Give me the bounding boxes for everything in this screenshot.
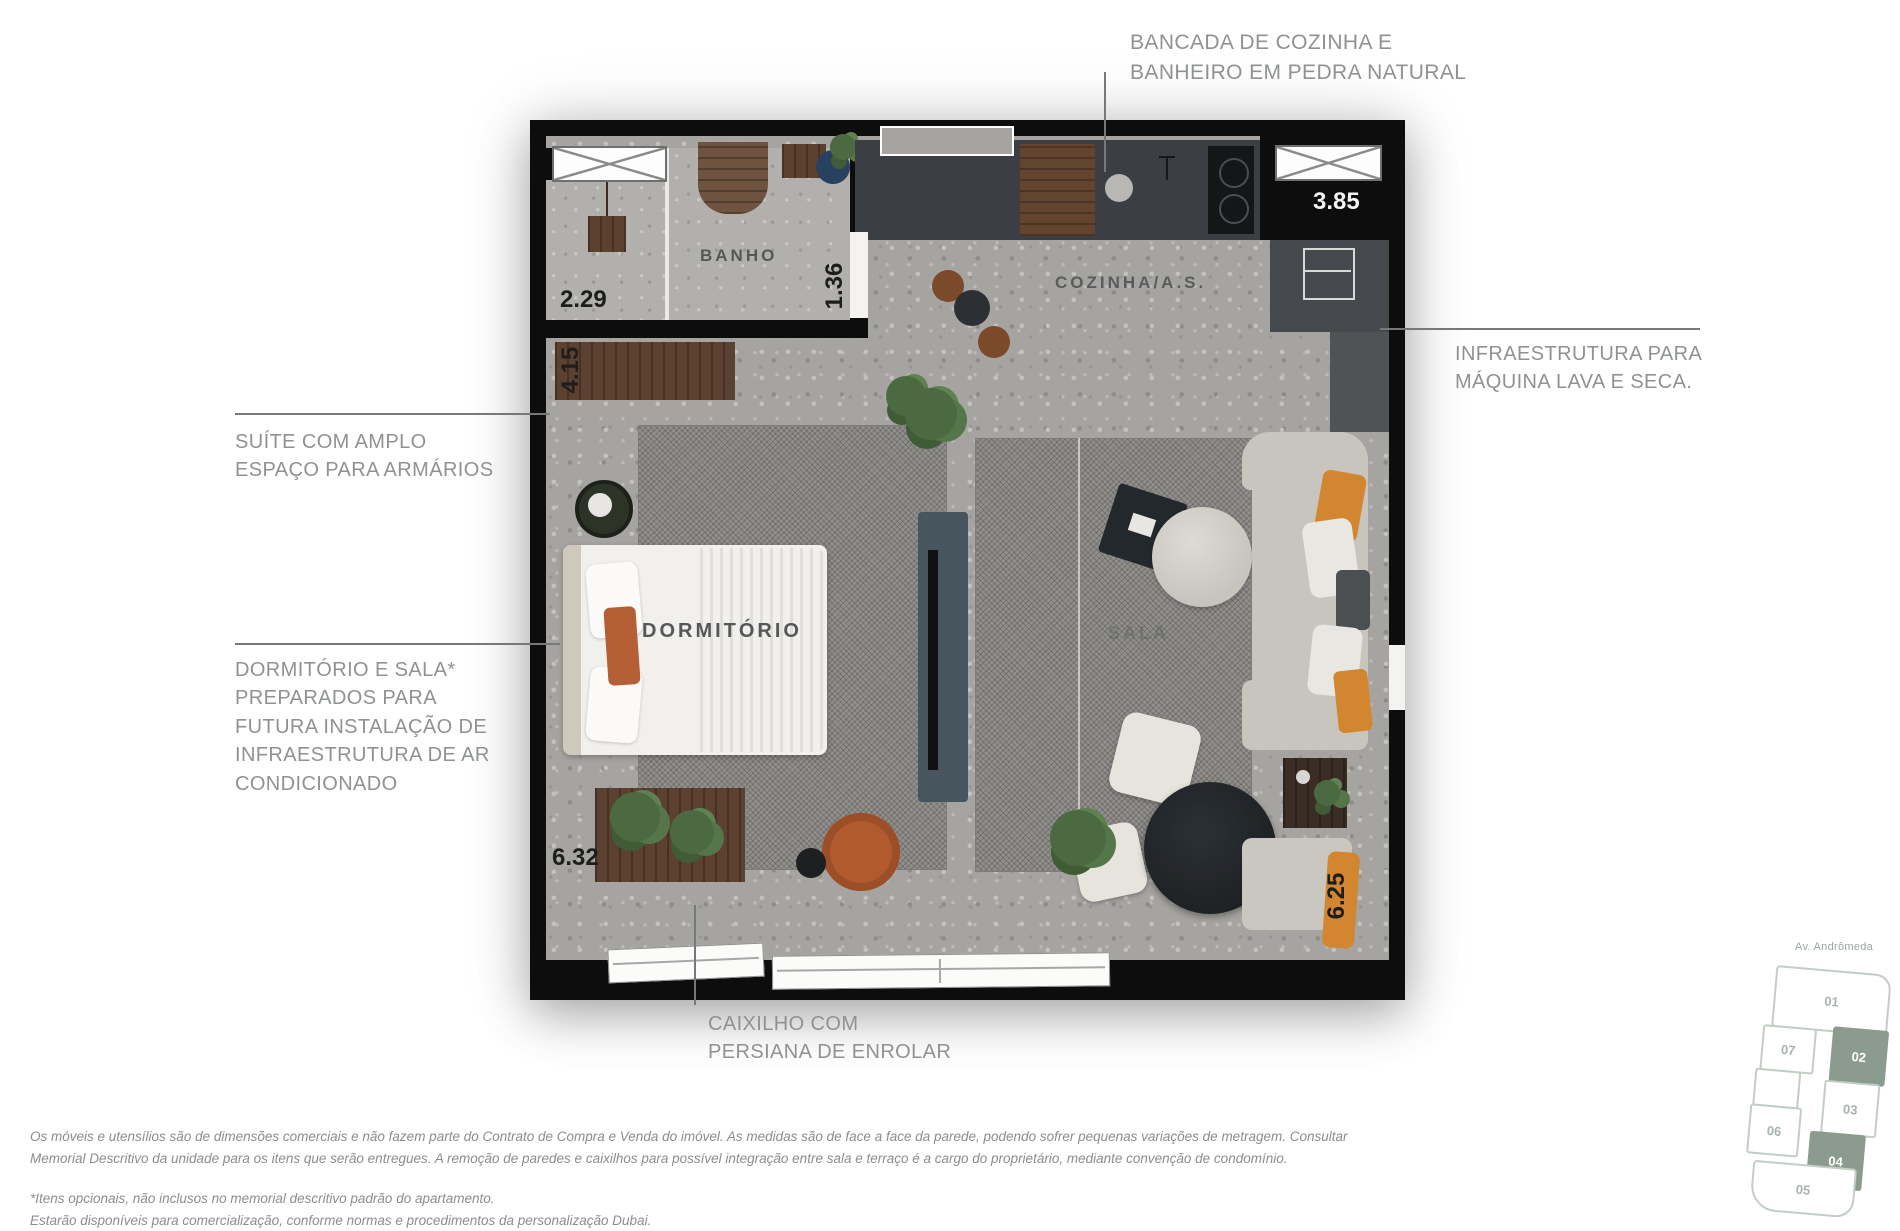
laundry-side-counter: [1330, 332, 1389, 432]
window-frame: [772, 952, 1110, 990]
keyplan-unit-03: 03: [1820, 1080, 1880, 1139]
lounge-chair: [822, 813, 900, 891]
annotation-line-lava-seca: [1380, 328, 1700, 330]
closet-rack: [588, 216, 626, 252]
floor-plan-page: BANHO COZINHA/A.S. DORMITÓRIO SALA 2.29 …: [0, 0, 1900, 1231]
closet-rail: [606, 182, 608, 218]
room-label-dormitorio: DORMITÓRIO: [642, 620, 802, 643]
bedside-table-top: [588, 493, 612, 517]
keyplan-building: 01 07 02 03 06 04 05: [1741, 956, 1900, 1220]
room-label-banho: BANHO: [700, 246, 777, 266]
cup-on-table: [1296, 770, 1310, 784]
annotation-lava-seca: INFRAESTRUTURA PARA MÁQUINA LAVA E SECA.: [1455, 340, 1702, 397]
keyplan-unit-05: 05: [1749, 1160, 1857, 1219]
washer-door-line: [1303, 270, 1351, 272]
keyplan-unit-06: 06: [1746, 1103, 1802, 1157]
shaft-x-icon: [1275, 145, 1382, 181]
kitchen-sink: [1105, 174, 1133, 202]
kitchen-faucet-bar: [1159, 156, 1175, 158]
dimension-wardrobe: 4.15: [557, 339, 585, 401]
washer-dryer: [1303, 248, 1355, 300]
dimension-closet: 2.29: [560, 286, 607, 314]
dimension-banho: 1.36: [821, 255, 849, 317]
annotation-suite: SUÍTE COM AMPLO ESPAÇO PARA ARMÁRIOS: [235, 428, 493, 485]
annotation-ar-condicionado: DORMITÓRIO E SALA* PREPARADOS PARA FUTUR…: [235, 656, 490, 798]
tv-panel: [928, 550, 938, 770]
annotation-bancada: BANCADA DE COZINHA E BANHEIRO EM PEDRA N…: [1130, 28, 1466, 88]
kitchen-wood-cabinet: [1020, 144, 1095, 236]
keyplan-unit-02: 02: [1829, 1026, 1890, 1087]
bedroom-plant: [670, 810, 714, 854]
cooktop-burner: [1219, 194, 1249, 224]
window-frame: [607, 943, 764, 984]
entry-door-niche: [880, 126, 1014, 156]
duvet-folds: [700, 548, 824, 752]
bistro-table: [954, 290, 990, 326]
cooktop-burner: [1219, 158, 1249, 188]
wall-below-bath: [546, 320, 868, 338]
floor-plan: BANHO COZINHA/A.S. DORMITÓRIO SALA 2.29 …: [530, 120, 1405, 1000]
annotation-line-bancada: [1104, 72, 1106, 172]
sofa-cushion-orange: [1333, 668, 1373, 733]
annotation-line-caixilho: [694, 905, 696, 1005]
bed-headboard: [563, 545, 581, 755]
annotation-caixilho: CAIXILHO COM PERSIANA DE ENROLAR: [708, 1010, 951, 1067]
round-pouf: [1152, 507, 1252, 607]
tv-console: [918, 512, 968, 802]
bath-vanity: [698, 142, 768, 214]
disclaimer-main: Os móveis e utensílios são de dimensões …: [30, 1126, 1348, 1169]
shaft-x-icon: [552, 146, 667, 182]
dimension-frente: 6.32: [552, 844, 599, 872]
footstool: [796, 848, 826, 878]
keyplan-street-label: Av. Andrômeda: [1795, 941, 1873, 953]
rug-seam: [1078, 438, 1080, 870]
dimension-cozinha: 3.85: [1313, 188, 1360, 216]
floor-plant: [1050, 810, 1106, 866]
bathroom-door-opening: [850, 232, 868, 318]
living-plant: [905, 388, 957, 440]
table-plant: [1314, 780, 1340, 806]
kitchen-faucet: [1166, 158, 1168, 180]
room-label-cozinha: COZINHA/A.S.: [1055, 273, 1206, 293]
bistro-chair: [978, 326, 1010, 358]
bedroom-plant: [610, 792, 660, 842]
room-label-sala: SALA: [1108, 623, 1169, 644]
right-wall-opening: [1389, 645, 1405, 710]
disclaimer-optional-items: *Itens opcionais, não inclusos no memori…: [30, 1188, 651, 1231]
bath-plant: [830, 134, 856, 160]
annotation-line-ar-condicionado: [235, 643, 560, 645]
annotation-line-suite: [235, 413, 550, 415]
sofa-cushion-dark: [1336, 570, 1370, 630]
bed-throw-pillow: [603, 606, 640, 686]
dimension-lateral: 6.25: [1323, 865, 1351, 927]
keyplan-unit-07: 07: [1759, 1024, 1817, 1075]
